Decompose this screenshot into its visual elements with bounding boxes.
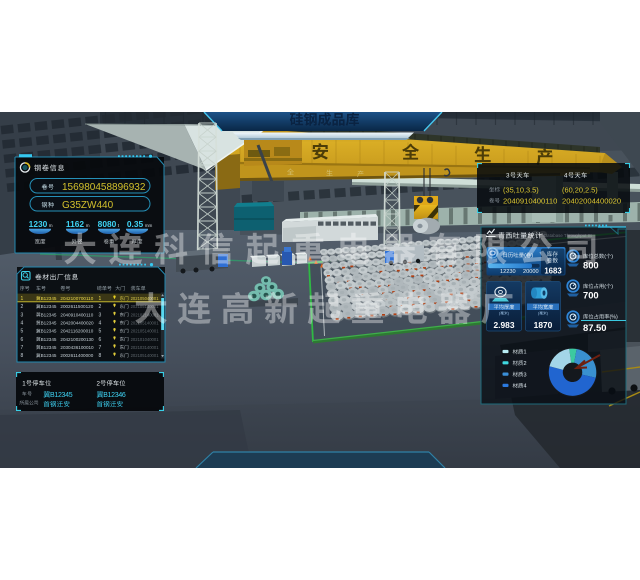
svg-text:B12345: B12345	[41, 353, 57, 358]
svg-text:B12345: B12345	[41, 296, 57, 301]
svg-text:(: (	[604, 254, 606, 260]
svg-text:5: 5	[21, 329, 24, 335]
svg-text:202105040001: 202105040001	[131, 296, 160, 301]
svg-text:2: 2	[21, 304, 24, 310]
svg-text:4: 4	[21, 320, 24, 326]
svg-text:4: 4	[524, 384, 527, 390]
svg-text:2042116200010: 2042116200010	[60, 329, 93, 334]
svg-text:4: 4	[99, 320, 102, 326]
svg-text:(%): (%)	[610, 315, 618, 321]
svg-text:6: 6	[21, 337, 24, 343]
svg-text:1683: 1683	[544, 267, 562, 276]
svg-text:12230: 12230	[500, 269, 516, 275]
svg-text:6: 6	[99, 337, 102, 343]
svg-text:2002611500120: 2002611500120	[60, 304, 93, 309]
svg-text:2042004400020: 2042004400020	[60, 320, 94, 325]
svg-text:4: 4	[564, 173, 568, 180]
svg-text:mm: mm	[145, 223, 153, 228]
svg-text:7: 7	[99, 345, 102, 351]
svg-text:3: 3	[99, 312, 102, 318]
svg-text:1: 1	[21, 296, 24, 302]
svg-text:3: 3	[506, 173, 510, 180]
svg-text:1870: 1870	[534, 320, 553, 330]
svg-text:20000: 20000	[523, 269, 539, 275]
svg-text:B12346: B12346	[103, 392, 126, 399]
svg-text:8: 8	[99, 353, 102, 359]
svg-text:202105140001: 202105140001	[131, 353, 160, 358]
svg-text:2040910400110: 2040910400110	[60, 312, 93, 317]
svg-text:): )	[611, 284, 613, 290]
svg-text:20402004400020: 20402004400020	[562, 197, 621, 206]
svg-text:(: (	[604, 284, 606, 290]
svg-text:1162: 1162	[66, 219, 85, 229]
svg-text:B12345: B12345	[41, 329, 57, 334]
svg-text:202101040001: 202101040001	[131, 337, 160, 342]
svg-text:2042100200130: 2042100200130	[60, 337, 94, 342]
svg-text:202105140001: 202105140001	[131, 320, 160, 325]
svg-text:2: 2	[97, 380, 101, 387]
svg-text:B12345: B12345	[41, 304, 57, 309]
svg-text:7: 7	[21, 345, 24, 351]
svg-text:8080: 8080	[98, 219, 117, 229]
svg-text:3: 3	[524, 372, 527, 378]
svg-text:202103140001: 202103140001	[131, 345, 160, 350]
svg-text:1: 1	[524, 350, 527, 356]
svg-text:2002611400000: 2002611400000	[60, 353, 93, 358]
svg-text:B12345: B12345	[41, 312, 57, 317]
svg-text:m: m	[49, 223, 53, 228]
svg-text:8: 8	[21, 353, 24, 359]
svg-text:202105140001: 202105140001	[131, 329, 160, 334]
svg-text:1230: 1230	[29, 219, 48, 229]
svg-text:B12345: B12345	[41, 320, 57, 325]
svg-text:2030436100010: 2030436100010	[60, 345, 94, 350]
svg-text:2: 2	[524, 361, 527, 367]
svg-text:(60,20,2.5): (60,20,2.5)	[562, 186, 598, 195]
svg-text:87.50: 87.50	[583, 322, 606, 333]
svg-text:2: 2	[99, 304, 102, 310]
svg-text:1: 1	[99, 296, 102, 302]
svg-text:2040910400110: 2040910400110	[503, 197, 557, 206]
svg-text:700: 700	[583, 290, 599, 301]
svg-text:1: 1	[22, 380, 26, 387]
svg-text:): )	[611, 254, 613, 260]
svg-text:156980458896932: 156980458896932	[62, 182, 146, 193]
svg-text:2042100700110: 2042100700110	[60, 296, 93, 301]
svg-text:B12345: B12345	[50, 392, 73, 399]
svg-text:B12345: B12345	[41, 345, 57, 350]
svg-text:0.35: 0.35	[127, 219, 144, 229]
svg-text:5: 5	[99, 329, 102, 335]
svg-text:2.983: 2.983	[494, 320, 515, 330]
svg-text:(35,10,3.5): (35,10,3.5)	[503, 186, 539, 195]
svg-text:m: m	[86, 223, 90, 228]
svg-text:B12345: B12345	[41, 337, 57, 342]
svg-text:G35ZW440: G35ZW440	[62, 200, 114, 211]
svg-text:3: 3	[21, 312, 24, 318]
